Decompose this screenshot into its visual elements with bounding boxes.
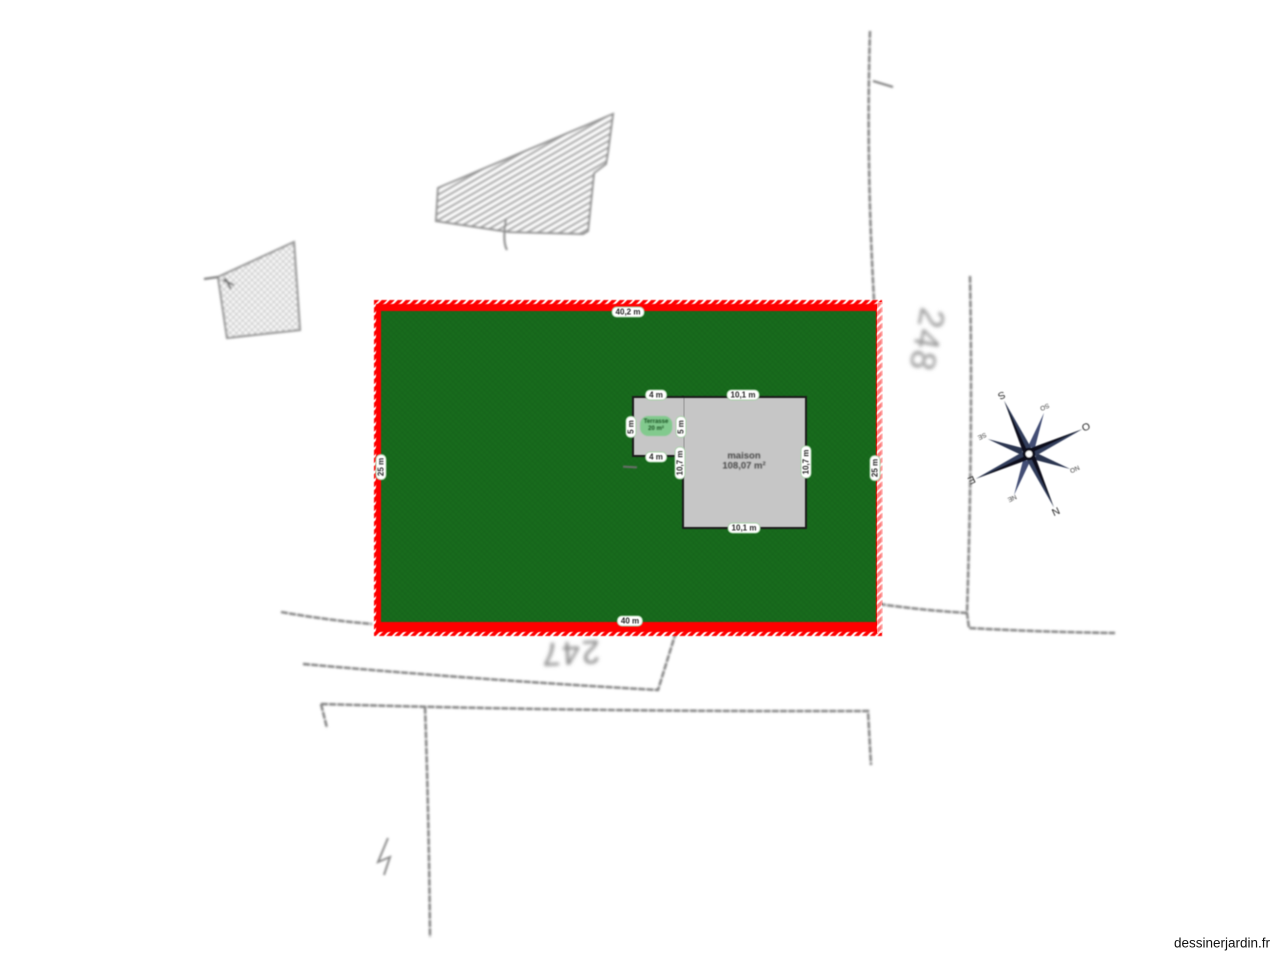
svg-text:NE: NE	[1006, 493, 1018, 503]
svg-text:O: O	[1079, 419, 1091, 433]
svg-text:E: E	[966, 473, 977, 487]
svg-text:SO: SO	[1039, 401, 1050, 411]
svg-text:SE: SE	[976, 431, 987, 441]
svg-text:S: S	[996, 388, 1007, 402]
svg-text:N: N	[1050, 504, 1062, 518]
svg-text:247: 247	[539, 633, 600, 672]
svg-text:NO: NO	[1069, 463, 1081, 473]
svg-text:248: 248	[901, 305, 952, 376]
